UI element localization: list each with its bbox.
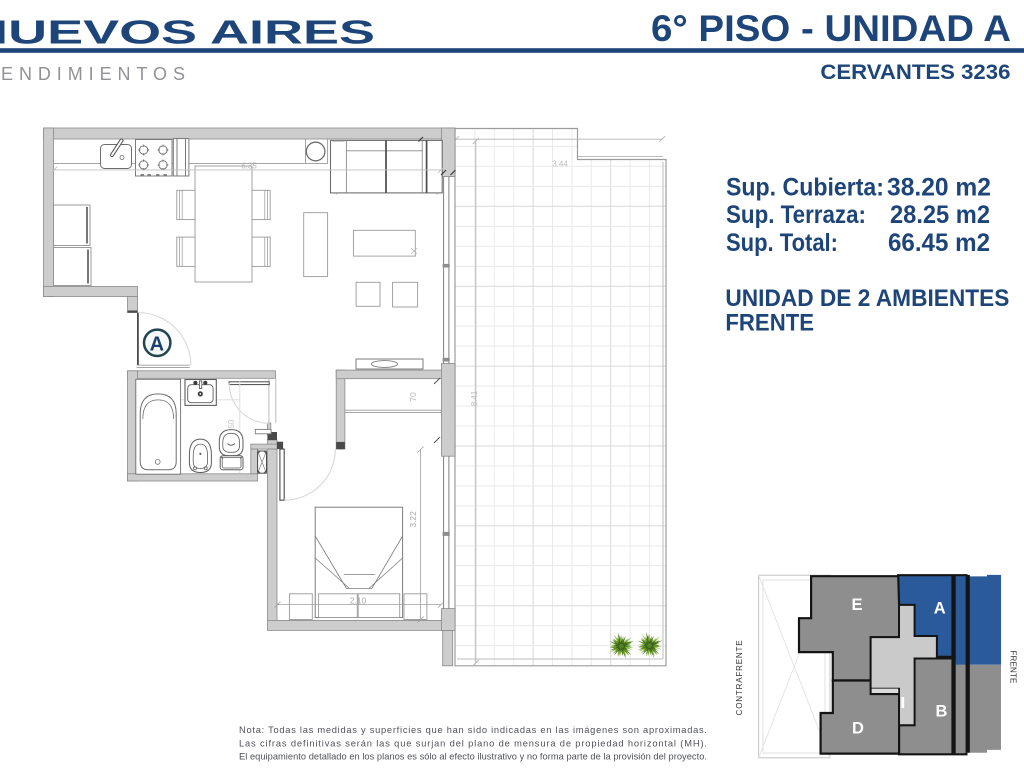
- svg-text:3.44: 3.44: [552, 160, 568, 169]
- svg-text:38.20 m2: 38.20 m2: [887, 174, 991, 202]
- svg-text:Nota: Todas las medidas y supe: Nota: Todas las medidas y superficies qu…: [239, 725, 707, 735]
- svg-text:Sup. Terraza:: Sup. Terraza:: [726, 201, 866, 229]
- svg-text:El equipamiento detallado en l: El equipamiento detallado en los planos …: [239, 752, 707, 762]
- svg-text:UNIDAD DE 2 AMBIENTES: UNIDAD DE 2 AMBIENTES: [725, 285, 1009, 312]
- svg-text:28.25 m2: 28.25 m2: [890, 201, 990, 229]
- svg-text:FRENTE: FRENTE: [725, 310, 814, 337]
- svg-text:NUEVOS AIRES: NUEVOS AIRES: [0, 14, 375, 51]
- svg-text:Las cifras definitivas serán l: Las cifras definitivas serán las que sur…: [239, 738, 707, 748]
- svg-text:8.41: 8.41: [470, 390, 479, 406]
- svg-text:3.22: 3.22: [408, 511, 418, 528]
- svg-text:70: 70: [408, 392, 418, 402]
- svg-text:A: A: [934, 600, 946, 618]
- svg-text:A: A: [150, 333, 164, 355]
- svg-text:D: D: [852, 719, 864, 737]
- svg-text:ENDIMIENTOS: ENDIMIENTOS: [1, 64, 185, 84]
- svg-text:6° PISO - UNIDAD A: 6° PISO - UNIDAD A: [651, 8, 1011, 49]
- svg-text:E: E: [851, 596, 862, 614]
- svg-text:Sup. Cubierta:: Sup. Cubierta:: [726, 174, 884, 202]
- svg-text:2.10: 2.10: [350, 596, 367, 606]
- svg-text:FRENTE: FRENTE: [1009, 650, 1018, 685]
- svg-text:Sup. Total:: Sup. Total:: [726, 229, 838, 257]
- svg-text:CERVANTES 3236: CERVANTES 3236: [820, 60, 1010, 84]
- svg-text:66.45 m2: 66.45 m2: [888, 229, 990, 257]
- svg-text:6.35: 6.35: [241, 162, 257, 171]
- svg-text:50: 50: [227, 419, 236, 428]
- svg-text:B: B: [936, 702, 948, 720]
- svg-text:CONTRAFRENTE: CONTRAFRENTE: [735, 638, 744, 715]
